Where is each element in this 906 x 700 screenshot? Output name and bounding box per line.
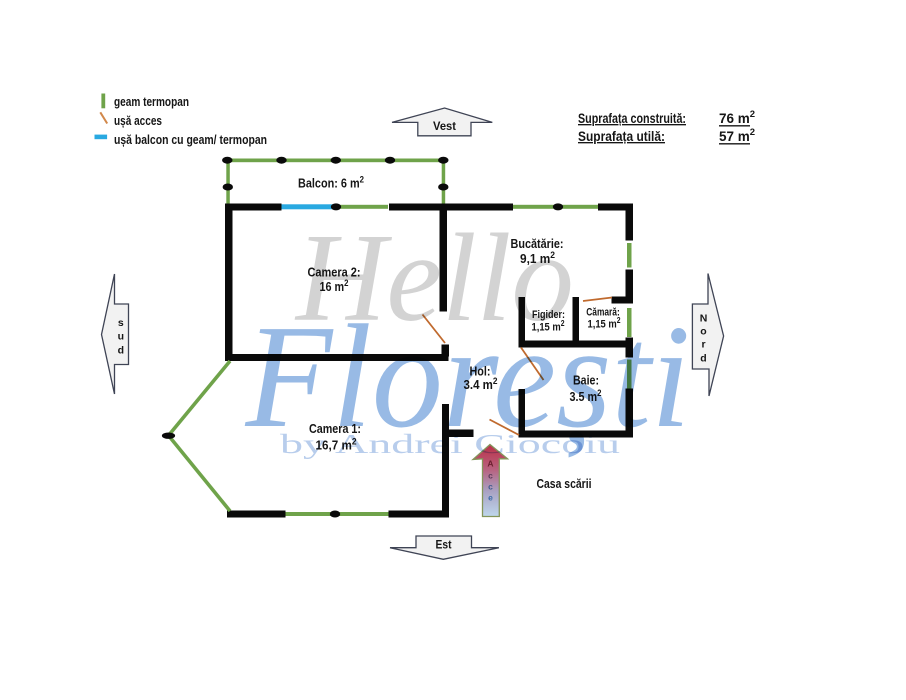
- svg-text:ușă balcon cu geam/ termopan: ușă balcon cu geam/ termopan: [114, 133, 267, 147]
- svg-text:c: c: [488, 471, 493, 481]
- svg-text:d: d: [700, 353, 706, 365]
- svg-text:Suprafața utilă:: Suprafața utilă:: [578, 129, 665, 144]
- svg-text:c: c: [488, 482, 493, 492]
- svg-text:57 m2: 57 m2: [719, 127, 755, 144]
- svg-text:N: N: [700, 313, 708, 325]
- svg-text:Balcon: 6 m2: Balcon: 6 m2: [298, 175, 364, 191]
- svg-text:by Andrei Ciocoiu: by Andrei Ciocoiu: [280, 429, 621, 459]
- svg-text:s: s: [118, 317, 124, 329]
- svg-text:geam termopan: geam termopan: [114, 95, 189, 109]
- svg-text:A: A: [487, 459, 493, 469]
- svg-text:u: u: [118, 331, 124, 343]
- svg-text:d: d: [118, 345, 124, 357]
- svg-text:Est: Est: [436, 540, 452, 552]
- svg-text:Casa scării: Casa scării: [537, 477, 592, 491]
- svg-text:76 m2: 76 m2: [719, 109, 755, 126]
- svg-text:e: e: [488, 493, 493, 503]
- svg-text:ușă acces: ușă acces: [114, 114, 162, 128]
- svg-text:Suprafața construită:: Suprafața construită:: [578, 111, 686, 126]
- svg-text:o: o: [700, 326, 706, 338]
- svg-text:Vest: Vest: [433, 121, 456, 133]
- svg-text:r: r: [701, 339, 705, 351]
